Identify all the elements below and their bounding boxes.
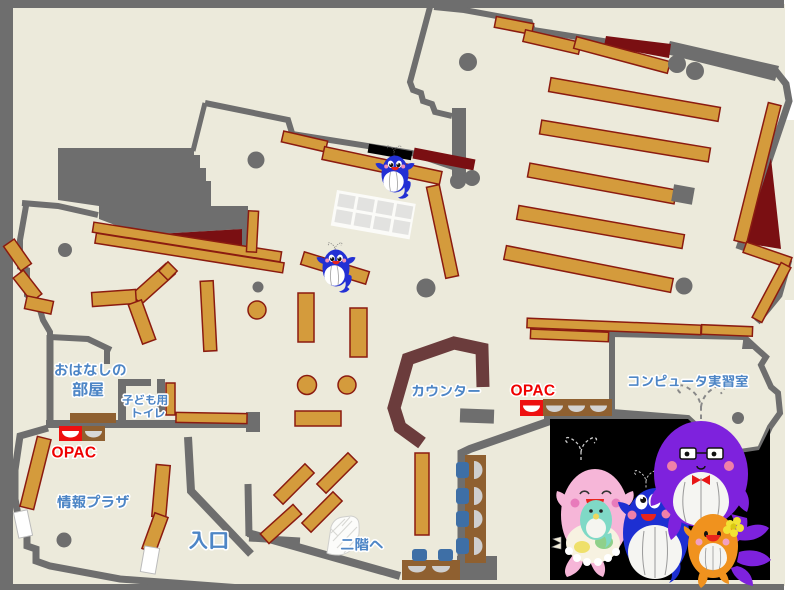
svg-text:OPAC: OPAC — [511, 383, 556, 400]
svg-text:OPAC: OPAC — [52, 445, 97, 462]
